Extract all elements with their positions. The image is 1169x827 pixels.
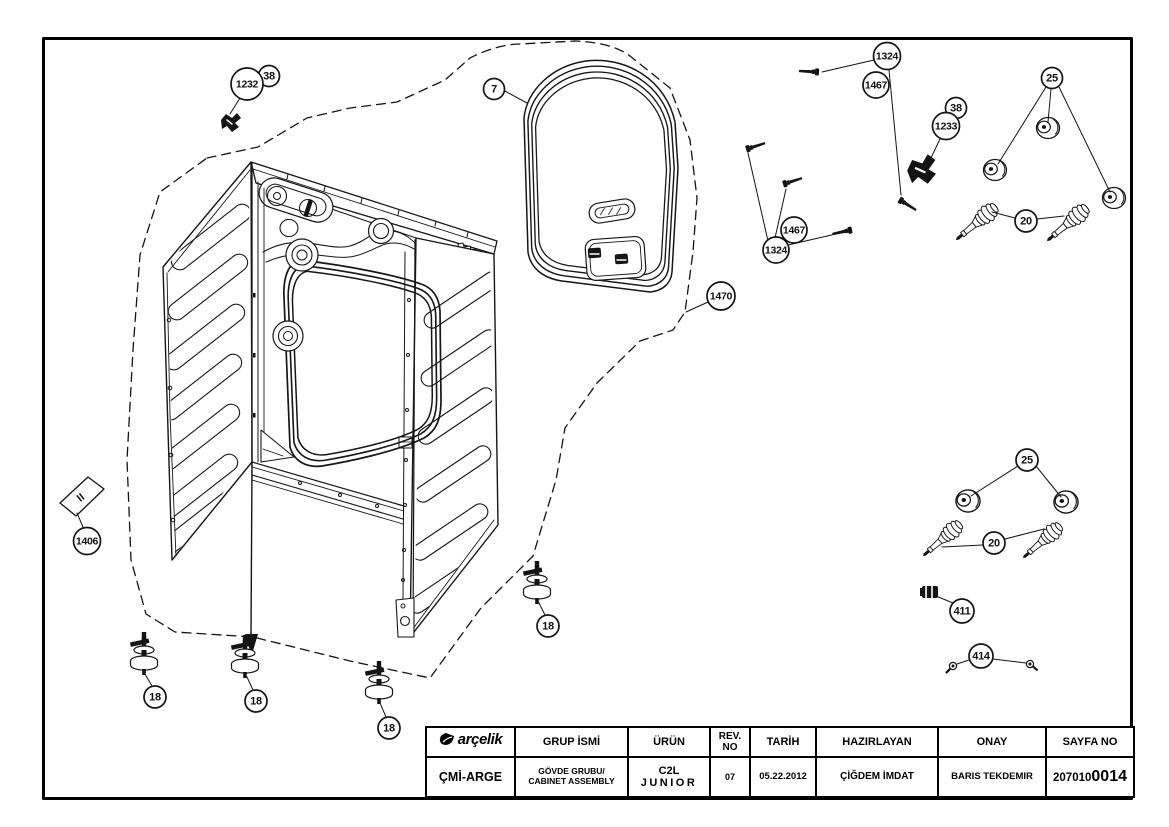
svg-text:1233: 1233 [935, 121, 958, 133]
callout-18: 18 [378, 717, 400, 739]
svg-text:25: 25 [1046, 73, 1058, 85]
prepared-header-cell: HAZIRLAYAN [816, 727, 938, 757]
date-header-cell: TARİH [750, 727, 816, 757]
svg-text:20: 20 [1020, 216, 1032, 228]
page-value-cell: 2070100014 [1046, 757, 1134, 797]
clip-part-411 [920, 586, 938, 598]
page-number-bold: 0014 [1091, 768, 1127, 785]
svg-text:1467: 1467 [783, 225, 806, 237]
svg-text:25: 25 [1021, 455, 1033, 467]
callout-1467: 1467 [781, 217, 807, 243]
callout-20: 20 [1015, 210, 1037, 232]
date-value-cell: 05.22.2012 [750, 757, 816, 797]
product-value-line2: JUNIOR [630, 777, 708, 789]
callout-1233: 1233 [933, 113, 960, 140]
rev-header-cell: REV. NO [710, 727, 750, 757]
svg-text:18: 18 [383, 723, 395, 735]
callout-1232: 1232 [231, 68, 263, 100]
group-header-cell: GRUP İSMİ [515, 727, 628, 757]
product-header-cell: ÜRÜN [628, 727, 710, 757]
exploded-diagram: II 3812327132414673812332520147014671324… [0, 0, 1169, 827]
group-value-line2: CABINET ASSEMBLY [517, 777, 626, 787]
svg-text:38: 38 [263, 71, 275, 83]
brand-cell: arçelik [426, 727, 515, 757]
callout-25: 25 [1016, 449, 1038, 471]
door-latch-plate [585, 236, 647, 281]
org-cell: ÇMİ-ARGE [426, 757, 515, 797]
product-value-line1: C2L [630, 765, 708, 777]
callout-18: 18 [537, 615, 559, 637]
svg-text:1232: 1232 [236, 79, 259, 91]
svg-text:20: 20 [988, 538, 1000, 550]
grommet-part [1054, 491, 1078, 513]
callout-20: 20 [983, 532, 1005, 554]
title-block: arçelik GRUP İSMİ ÜRÜN REV. NO TARİH HAZ… [425, 726, 1135, 798]
brand-name: arçelik [458, 732, 503, 749]
callout-1467: 1467 [863, 72, 889, 98]
callout-414: 414 [969, 644, 993, 668]
callout-1324: 1324 [763, 237, 789, 263]
callout-1406: 1406 [74, 528, 101, 555]
callout-7: 7 [484, 79, 505, 100]
grommet-part [984, 160, 1007, 181]
svg-text:1467: 1467 [865, 80, 888, 92]
svg-text:411: 411 [954, 606, 971, 618]
door-panel [524, 60, 678, 292]
svg-text:7: 7 [491, 84, 497, 96]
rev-value-cell: 07 [710, 757, 750, 797]
rev-header-line1: REV. [712, 731, 748, 742]
grommet-part [1103, 188, 1126, 209]
callout-18: 18 [144, 686, 166, 708]
approval-value-cell: BARIS TEKDEMIR [938, 757, 1046, 797]
callout-1324: 1324 [874, 43, 901, 70]
svg-text:1324: 1324 [765, 245, 788, 257]
svg-text:18: 18 [250, 696, 262, 708]
svg-text:1406: 1406 [76, 536, 99, 548]
page-header-cell: SAYFA NO [1046, 727, 1134, 757]
callout-25: 25 [1042, 68, 1063, 89]
svg-text:18: 18 [149, 692, 161, 704]
rev-header-line2: NO [712, 742, 748, 753]
callout-1470: 1470 [707, 282, 735, 310]
callout-18: 18 [245, 690, 267, 712]
group-value-cell: GÖVDE GRUBU/ CABINET ASSEMBLY [515, 757, 628, 797]
arcelik-leaf-icon [439, 732, 456, 747]
svg-text:1324: 1324 [876, 51, 899, 63]
approval-header-cell: ONAY [938, 727, 1046, 757]
svg-text:38: 38 [950, 103, 962, 115]
svg-text:414: 414 [972, 651, 991, 663]
prepared-value-cell: ÇİĞDEM İMDAT [816, 757, 938, 797]
callout-411: 411 [950, 599, 974, 623]
svg-text:1470: 1470 [710, 291, 733, 303]
page-number-prefix: 207010 [1053, 772, 1091, 784]
product-value-cell: C2L JUNIOR [628, 757, 710, 797]
grommet-part [956, 490, 980, 512]
svg-text:18: 18 [542, 621, 554, 633]
drawing-sheet: II 3812327132414673812332520147014671324… [0, 0, 1169, 827]
